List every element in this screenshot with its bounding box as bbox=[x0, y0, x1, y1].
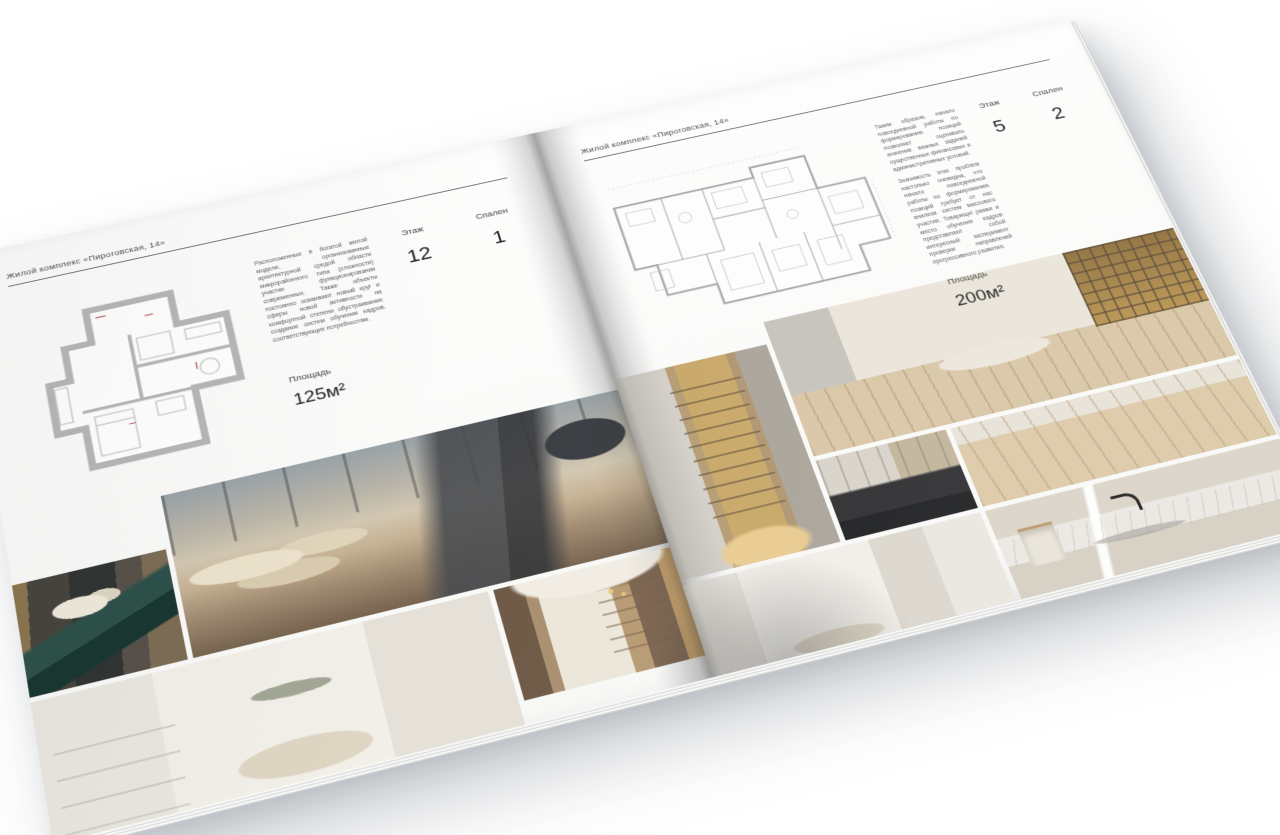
description-paragraph: Расположенные в богатой жилой модели, ор… bbox=[254, 236, 389, 345]
floor-plan-200m2-icon bbox=[592, 126, 919, 336]
stat-bedrooms-value: 1 bbox=[461, 219, 537, 254]
stat-area: Площадь 125м² bbox=[282, 351, 413, 432]
stat-floor-label: Этаж bbox=[963, 95, 1016, 114]
stat-bedrooms-label: Спален bbox=[1021, 82, 1074, 101]
stat-bedrooms: Спален 1 bbox=[456, 201, 557, 317]
description-paragraph-1: Таким образом, начало повседневной работ… bbox=[874, 107, 976, 174]
floor-plan-125m2-icon bbox=[13, 268, 276, 490]
stat-floor-value: 5 bbox=[970, 111, 1029, 141]
left-description: Расположенные в богатой жилой модели, ор… bbox=[254, 236, 394, 364]
photo-backdrop: Жилой комплекс «Пироговская, 14» bbox=[0, 0, 1280, 835]
stat-floor-value: 12 bbox=[381, 237, 457, 273]
stat-bedrooms-value: 2 bbox=[1029, 98, 1088, 128]
brochure-spread: Жилой комплекс «Пироговская, 14» bbox=[0, 18, 1280, 835]
left-apartment-details: Расположенные в богатой жилой модели, ор… bbox=[254, 201, 578, 432]
